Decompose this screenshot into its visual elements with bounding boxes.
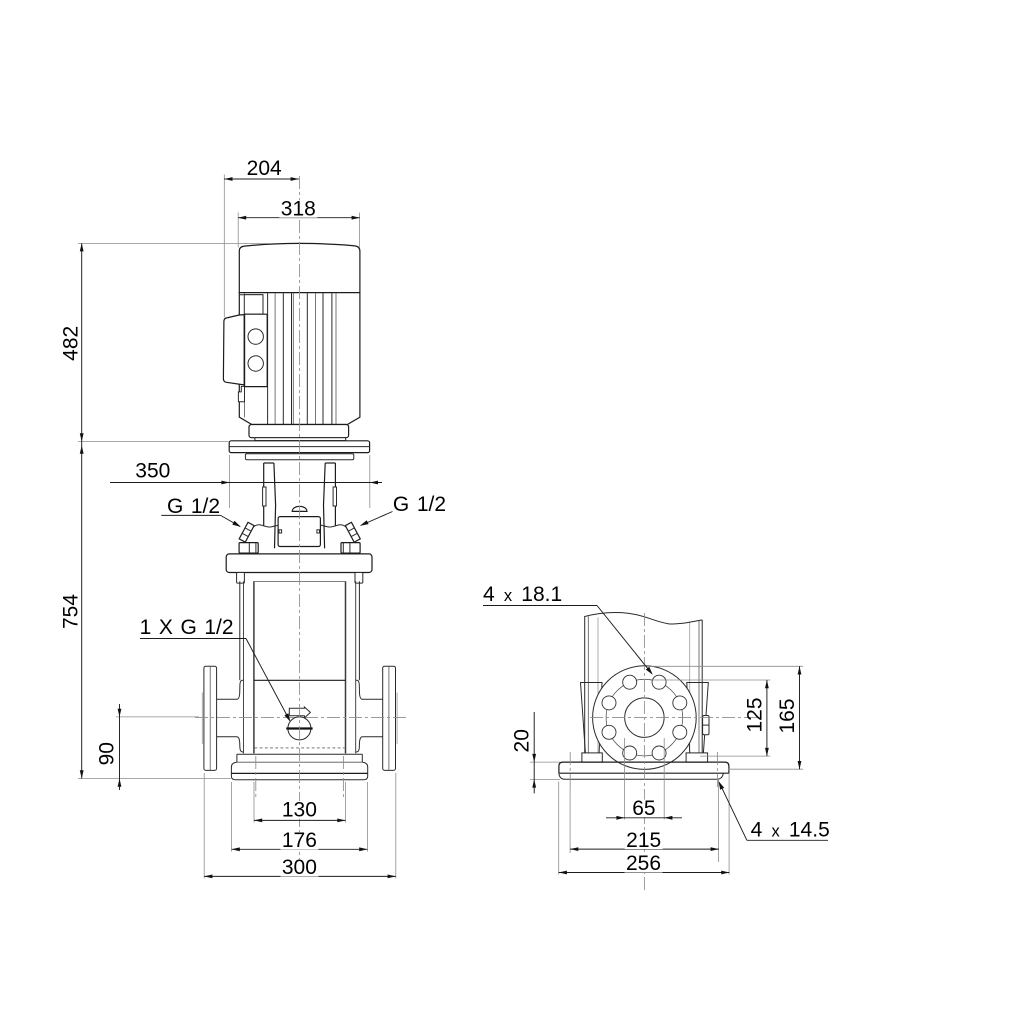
svg-text:176: 176: [282, 829, 317, 852]
svg-text:130: 130: [282, 798, 317, 821]
svg-text:125: 125: [744, 697, 767, 732]
svg-text:204: 204: [247, 157, 282, 180]
svg-text:350: 350: [135, 460, 170, 483]
svg-text:215: 215: [626, 829, 661, 852]
svg-text:165: 165: [776, 698, 799, 733]
svg-text:90: 90: [96, 742, 119, 765]
svg-text:4 x 18.1: 4 x 18.1: [483, 583, 562, 606]
svg-text:65: 65: [632, 797, 655, 820]
svg-text:G 1/2: G 1/2: [393, 493, 446, 516]
svg-text:4 x 14.5: 4 x 14.5: [751, 818, 830, 841]
svg-text:20: 20: [511, 729, 534, 752]
svg-text:300: 300: [282, 856, 317, 879]
svg-text:754: 754: [60, 594, 83, 629]
svg-text:G 1/2: G 1/2: [167, 495, 220, 518]
svg-text:256: 256: [626, 852, 661, 875]
svg-text:482: 482: [60, 326, 83, 361]
svg-text:1 X G 1/2: 1 X G 1/2: [140, 616, 234, 639]
svg-text:318: 318: [281, 197, 316, 220]
